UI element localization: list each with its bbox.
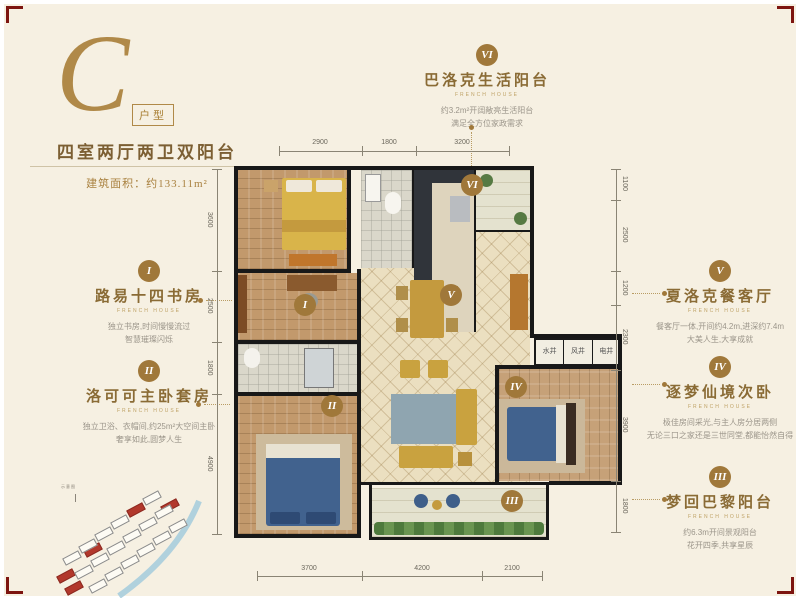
- corner-bracket: [777, 577, 794, 594]
- floorplan: 2900 1800 3200 3700 4200 2100 3600 2500 …: [204, 134, 644, 594]
- corner-bracket: [6, 6, 23, 23]
- dim-label: 2500: [206, 286, 213, 326]
- wall: [412, 170, 414, 268]
- dimension-line: [416, 146, 417, 156]
- pillow: [270, 512, 300, 524]
- pillow: [316, 180, 342, 192]
- dimension-line: [611, 481, 621, 482]
- armchair: [400, 360, 420, 378]
- toilet: [385, 192, 401, 214]
- dim-label: 1800: [206, 348, 213, 388]
- dimension-line: [611, 305, 621, 306]
- wall: [495, 365, 499, 485]
- dim-label: 1800: [621, 486, 628, 526]
- headboard: [566, 403, 576, 465]
- annotation-desc: 约3.2m²开阔敞亮生活阳台满足全方位家政需求: [402, 104, 572, 130]
- dimension-line: [611, 532, 621, 533]
- dimension-line: [257, 576, 542, 577]
- dimension-line: [212, 342, 222, 343]
- dresser: [289, 254, 337, 266]
- leader-dot: [469, 125, 474, 130]
- dim-label: 2900: [290, 139, 350, 146]
- dimension-line: [212, 169, 222, 170]
- dimension-line: [611, 169, 621, 170]
- dim-label: 3600: [206, 200, 213, 240]
- annotation-subtitle: FRENCH HOUSE: [634, 308, 800, 314]
- dim-label: 1800: [359, 139, 419, 146]
- chair: [396, 318, 408, 332]
- dim-label: 3700: [279, 565, 339, 572]
- dim-label: 4200: [392, 565, 452, 572]
- side-table: [458, 452, 472, 466]
- north-mark-icon: [75, 494, 76, 502]
- wall: [234, 534, 361, 538]
- tv-cabinet: [510, 274, 528, 330]
- balcony-chair: [414, 494, 428, 508]
- nightstand: [264, 180, 278, 192]
- wall: [495, 365, 622, 369]
- sofa: [399, 446, 453, 468]
- annotation-desc: 约6.3m开间景观阳台花开四季,共享星辰: [634, 526, 800, 552]
- dimension-line: [611, 271, 621, 272]
- dimension-line: [611, 370, 621, 371]
- sofa: [456, 389, 477, 445]
- numeral-badge: IV: [709, 356, 731, 378]
- dimension-line: [257, 571, 258, 581]
- toilet: [244, 348, 260, 368]
- leader-dot: [662, 497, 667, 502]
- dimension-line: [362, 146, 363, 156]
- annotation-subtitle: FRENCH HOUSE: [634, 404, 800, 410]
- washer: [365, 174, 381, 202]
- annotation-title: 巴洛克生活阳台: [402, 71, 572, 91]
- room-marker-paris-balcony: III: [501, 490, 523, 512]
- dim-label: 4900: [206, 444, 213, 484]
- fridge: [450, 196, 470, 222]
- dim-label: 3900: [621, 405, 628, 445]
- dim-label: 1100: [621, 164, 628, 204]
- wall: [234, 269, 351, 273]
- utility-shafts: 水井 风井 电井: [534, 338, 622, 366]
- dimension-line: [217, 169, 218, 534]
- wall: [476, 230, 532, 232]
- wall: [347, 166, 351, 273]
- leader-dot: [196, 402, 201, 407]
- unit-letter: C: [56, 18, 129, 128]
- blanket: [282, 220, 346, 232]
- corner-bracket: [6, 577, 23, 594]
- wall: [546, 485, 549, 539]
- annotation-life-balcony: VI 巴洛克生活阳台 FRENCH HOUSE 约3.2m²开阔敞亮生活阳台满足…: [402, 44, 572, 130]
- dim-label: 1200: [621, 268, 628, 308]
- corner-bracket: [777, 6, 794, 23]
- wall: [369, 485, 372, 539]
- pillow: [556, 405, 566, 463]
- wall: [234, 166, 534, 170]
- unit-type-tag: 户型: [132, 104, 174, 126]
- armchair: [428, 360, 448, 378]
- numeral-badge: I: [138, 260, 160, 282]
- leader-dot: [662, 291, 667, 296]
- pillow: [286, 180, 312, 192]
- numeral-badge: V: [709, 260, 731, 282]
- room-marker-second-bedroom: IV: [505, 376, 527, 398]
- annotation-second-bedroom: IV 逐梦仙境次卧 FRENCH HOUSE 极佳房间采光,与主人房分居两侧无论…: [634, 356, 800, 442]
- balcony-chair: [446, 494, 460, 508]
- room-marker-master: II: [321, 395, 343, 417]
- room-marker-life-balcony: VI: [461, 174, 483, 196]
- leader-dot: [198, 298, 203, 303]
- dimension-line: [279, 151, 509, 152]
- annotation-dining-living: V 夏洛克餐客厅 FRENCH HOUSE 餐客厅一体,开间约4.2m,进深约7…: [634, 260, 800, 346]
- dimension-line: [362, 571, 363, 581]
- wall: [369, 537, 549, 540]
- rug: [391, 394, 457, 444]
- wall: [530, 166, 534, 338]
- dim-label: 2300: [621, 317, 628, 357]
- room-marker-dining-living: V: [440, 284, 462, 306]
- pillow: [306, 512, 336, 524]
- shaft-label: 水井: [536, 340, 563, 364]
- wall: [359, 482, 549, 485]
- annotation-title: 逐梦仙境次卧: [634, 383, 800, 403]
- wall: [234, 166, 238, 538]
- site-map: 示意图: [49, 476, 224, 598]
- dimension-line: [611, 200, 621, 201]
- sheet: [266, 444, 340, 458]
- shower: [304, 348, 334, 388]
- wall: [234, 340, 361, 344]
- dimension-line: [616, 169, 617, 532]
- dimension-line: [279, 146, 280, 156]
- chair: [446, 318, 458, 332]
- annotation-subtitle: FRENCH HOUSE: [634, 514, 800, 520]
- numeral-badge: II: [138, 360, 160, 382]
- annotation-desc: 极佳房间采光,与主人房分居两侧无论三口之家还是三世同堂,都能怡然自得: [634, 416, 800, 442]
- dim-label: 2100: [482, 565, 542, 572]
- annotation-title: 梦回巴黎阳台: [634, 493, 800, 513]
- dimension-line: [542, 571, 543, 581]
- dim-label: 3200: [432, 139, 492, 146]
- wall: [234, 392, 361, 396]
- annotation-paris-balcony: III 梦回巴黎阳台 FRENCH HOUSE 约6.3m开间景观阳台花开四季,…: [634, 466, 800, 552]
- leader-dot: [662, 382, 667, 387]
- wall: [530, 334, 622, 338]
- dining-table: [410, 280, 444, 338]
- shaft-label: 风井: [563, 340, 591, 364]
- dimension-line: [482, 571, 483, 581]
- balcony-table: [432, 500, 442, 510]
- dim-label: 2500: [621, 215, 628, 255]
- balcony-plants: [374, 522, 544, 535]
- plant: [514, 212, 527, 225]
- room-marker-study: I: [294, 294, 316, 316]
- dimension-line: [509, 146, 510, 156]
- dimension-line: [212, 394, 222, 395]
- poster-background: C 户型 四室两厅两卫双阳台 建筑面积：约133.11m² I 路易十四书房 F…: [4, 4, 796, 596]
- annotation-title: 夏洛克餐客厅: [634, 287, 800, 307]
- site-map-caption: 示意图: [61, 484, 76, 490]
- numeral-badge: VI: [476, 44, 498, 66]
- bookshelf: [238, 275, 247, 333]
- chair: [396, 286, 408, 300]
- desk: [287, 275, 337, 291]
- numeral-badge: III: [709, 466, 731, 488]
- wall: [357, 269, 361, 538]
- dimension-line: [212, 271, 222, 272]
- annotation-subtitle: FRENCH HOUSE: [402, 92, 572, 98]
- annotation-desc: 餐客厅一体,开间约4.2m,进深约7.4m大美人生,大享成就: [634, 320, 800, 346]
- dimension-line: [212, 534, 222, 535]
